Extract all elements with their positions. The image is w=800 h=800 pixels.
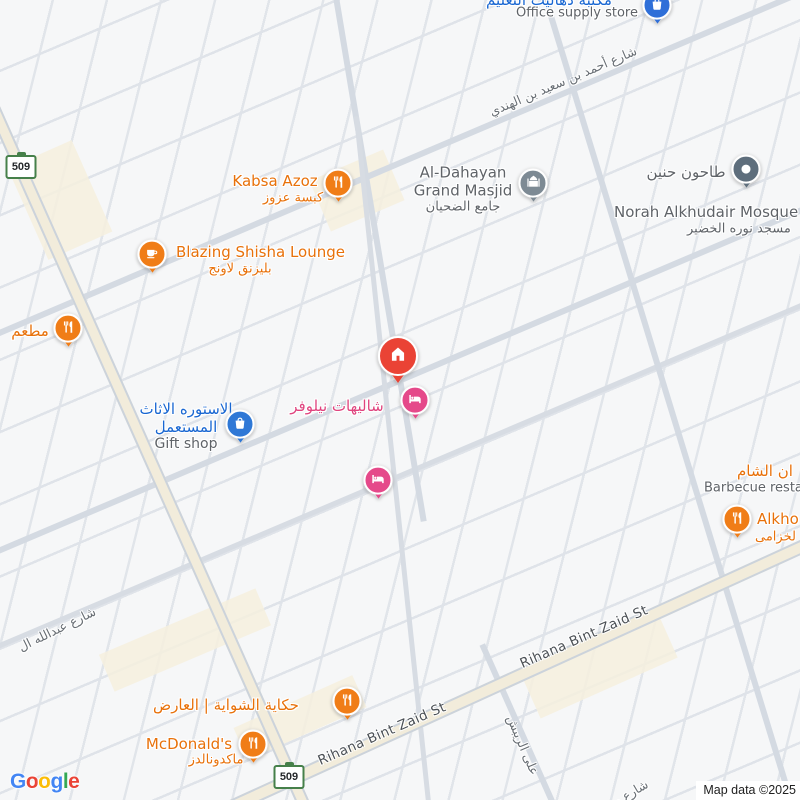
hotel-pin-chalets-nilofar[interactable] bbox=[401, 386, 430, 415]
restaurant-pin-alkhozama[interactable] bbox=[723, 505, 752, 534]
restaurant-pin-mcdonalds[interactable] bbox=[239, 730, 268, 759]
poi-label-line: جامع الضحيان bbox=[414, 200, 513, 215]
cafe-pin-blazing-shisha[interactable] bbox=[138, 240, 167, 269]
poi-label-line: الاستوره الاثاث bbox=[139, 400, 232, 418]
coffee-cup-icon bbox=[146, 245, 159, 264]
poi-label-gift-shop[interactable]: الاستوره الاثاث المستعمل Gift shop bbox=[139, 400, 232, 452]
place-pin-tahoon-haneen[interactable] bbox=[732, 155, 761, 184]
poi-label-blazing-shisha[interactable]: Blazing Shisha Lounge bbox=[176, 243, 345, 261]
shop-pin-gift-shop[interactable] bbox=[226, 410, 255, 439]
fork-knife-icon bbox=[341, 692, 354, 711]
map-canvas[interactable]: شارع أحمد بن سعيد بن الهندي Rihana Bint … bbox=[0, 0, 800, 800]
poi-label-chalets-nilofar[interactable]: شاليهات نيلوفر bbox=[290, 397, 383, 415]
road bbox=[0, 218, 800, 691]
route-shield-509-bottom: 509 bbox=[274, 765, 305, 789]
map-attribution: Map data ©2025 bbox=[696, 781, 800, 800]
poi-label-line: Al-Dahayan bbox=[414, 164, 513, 182]
poi-label-alkhozama-ar[interactable]: لخزامى bbox=[755, 530, 796, 545]
poi-label-mcdonalds[interactable]: McDonald's bbox=[146, 735, 232, 753]
route-shield-label: 509 bbox=[12, 161, 30, 173]
fork-knife-icon bbox=[247, 735, 260, 754]
road bbox=[333, 0, 426, 522]
poi-label-alsham-category[interactable]: Barbecue restau bbox=[704, 481, 800, 496]
fork-knife-icon bbox=[332, 174, 345, 193]
poi-label-norah-mosque-ar[interactable]: مسجد نوره الخضير bbox=[687, 222, 791, 237]
poi-label-blazing-shisha-ar[interactable]: بليزنق لاونج bbox=[208, 262, 271, 277]
poi-label-tahoon-haneen[interactable]: طاحون حنين bbox=[646, 163, 725, 181]
poi-label-mcdonalds-ar[interactable]: ماكدونالدز bbox=[189, 753, 244, 768]
destination-pin-home[interactable] bbox=[378, 336, 418, 376]
poi-label-line: Grand Masjid bbox=[414, 182, 513, 200]
dot-icon bbox=[742, 165, 751, 174]
poi-label-hekayat-alshawaya[interactable]: حكاية الشواية | العارض bbox=[153, 696, 299, 714]
bed-icon bbox=[372, 471, 385, 490]
poi-label-kabsa-azoz-ar[interactable]: كبسة عزوز bbox=[263, 191, 323, 206]
shopping-bag-icon bbox=[234, 415, 247, 434]
mosque-pin-al-dahayan[interactable] bbox=[519, 169, 548, 198]
restaurant-pin-matam[interactable] bbox=[54, 314, 83, 343]
route-shield-label: 509 bbox=[280, 771, 298, 783]
home-icon bbox=[389, 345, 407, 367]
poi-label-norah-mosque[interactable]: Norah Alkhudair Mosque bbox=[614, 203, 798, 221]
poi-label-alsham[interactable]: ان الشام bbox=[737, 462, 793, 480]
poi-label-alkhozama[interactable]: Alkho bbox=[757, 510, 799, 528]
restaurant-pin-kabsa-azoz[interactable] bbox=[324, 169, 353, 198]
poi-label-matam[interactable]: مطعم bbox=[11, 322, 49, 340]
poi-label-line: Gift shop bbox=[139, 436, 232, 452]
poi-label-kabsa-azoz[interactable]: Kabsa Azoz bbox=[232, 172, 317, 190]
route-shield-509-left: 509 bbox=[6, 155, 37, 179]
street-label-ala-alrubaish: على الريبش bbox=[504, 713, 543, 777]
poi-label-line: المستعمل bbox=[139, 418, 232, 436]
shopping-bag-icon bbox=[651, 0, 664, 15]
hotel-pin-unnamed[interactable] bbox=[364, 466, 393, 495]
road bbox=[354, 116, 432, 800]
poi-label-office-supply-category[interactable]: Office supply store bbox=[516, 6, 638, 21]
fork-knife-icon bbox=[62, 319, 75, 338]
google-logo[interactable]: Google bbox=[10, 770, 79, 794]
mosque-icon bbox=[526, 174, 540, 193]
street-label-abdullah: شارع عبدالله ال bbox=[16, 604, 98, 654]
office-supply-store-pin[interactable] bbox=[643, 0, 672, 20]
bed-icon bbox=[409, 391, 422, 410]
street-label-sharea-m: شارع م bbox=[609, 776, 651, 800]
poi-label-al-dahayan-masjid[interactable]: Al-Dahayan Grand Masjid جامع الضحيان bbox=[414, 164, 513, 215]
restaurant-pin-hekayat-alshawaya[interactable] bbox=[333, 687, 362, 716]
fork-knife-icon bbox=[731, 510, 744, 529]
